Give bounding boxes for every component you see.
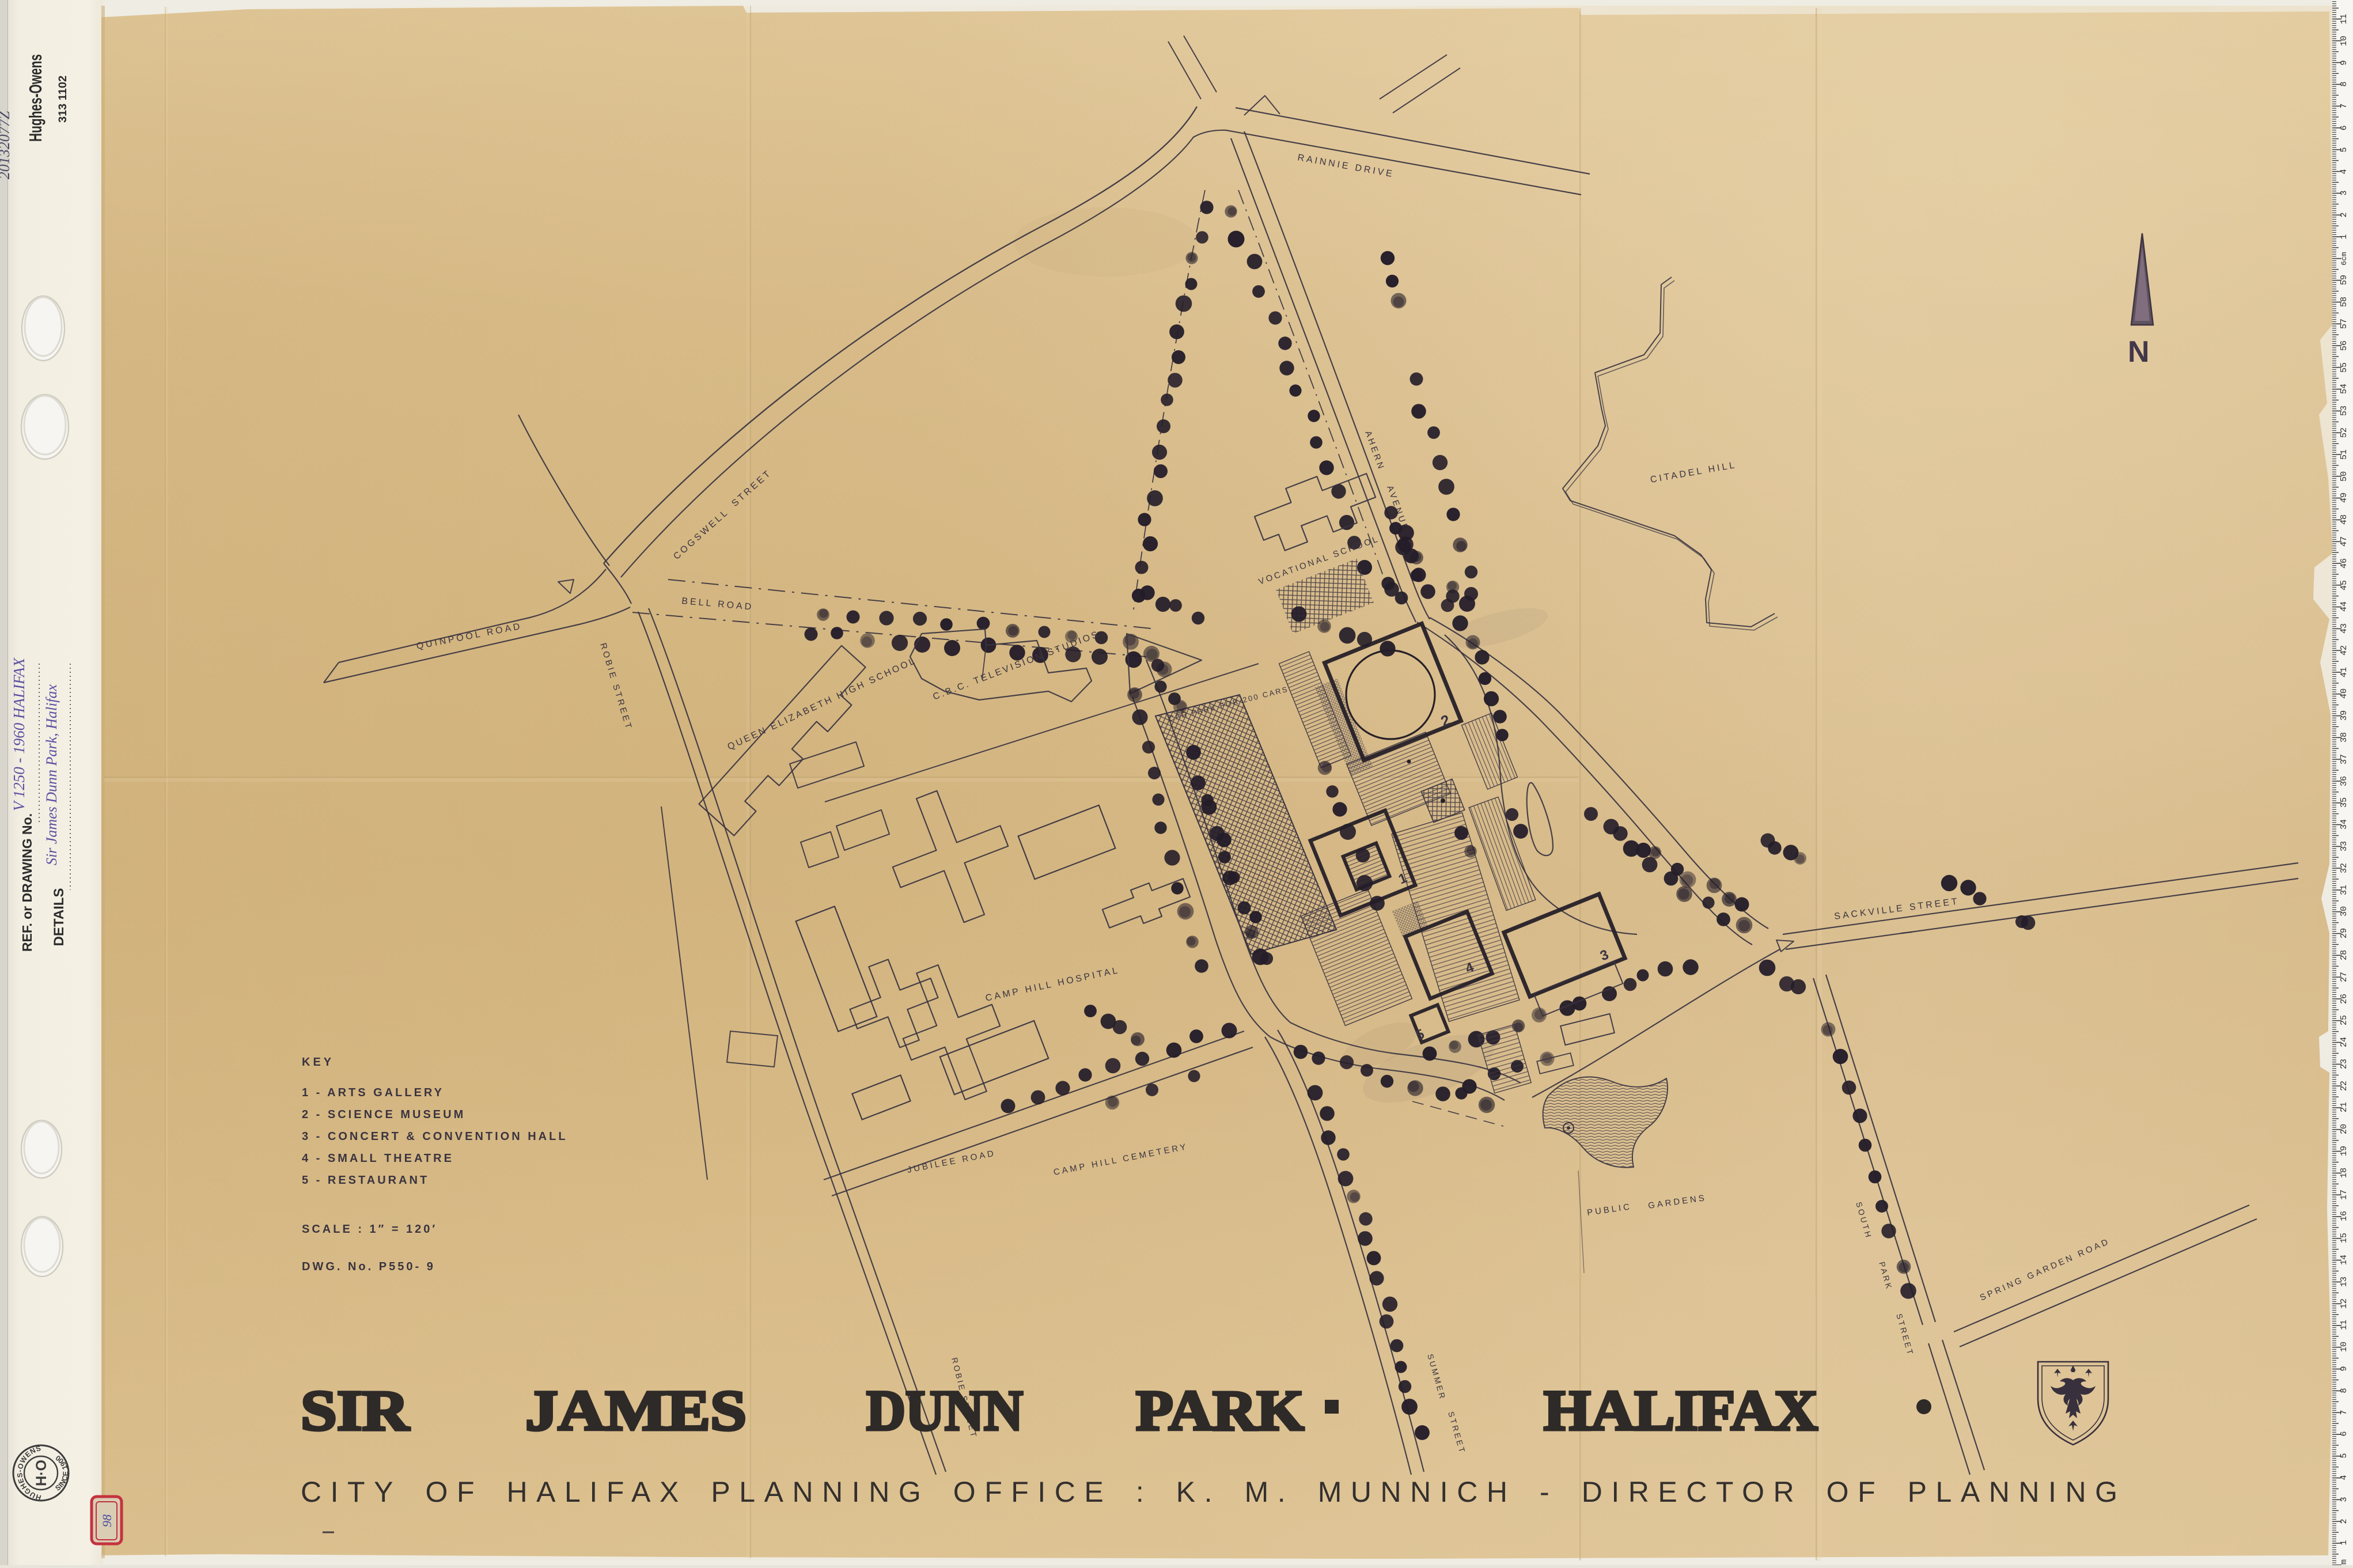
svg-text:7: 7 [2339,103,2349,108]
svg-text:40: 40 [2339,688,2349,699]
svg-text:28: 28 [2339,950,2349,960]
svg-text:5 - RESTAURANT: 5 - RESTAURANT [302,1174,429,1187]
svg-text:25: 25 [2339,1015,2349,1025]
svg-text:2 - SCIENCE MUSEUM: 2 - SCIENCE MUSEUM [302,1108,465,1121]
svg-text:12: 12 [2339,1298,2349,1309]
svg-text:HALIFAX: HALIFAX [1544,1378,1818,1442]
svg-text:7: 7 [2339,1410,2349,1415]
svg-text:21: 21 [2339,1102,2349,1112]
svg-text:17: 17 [2339,1190,2349,1200]
svg-text:DETAILS: DETAILS [51,888,67,946]
svg-text:10: 10 [2339,1342,2349,1352]
svg-text:32: 32 [2339,863,2349,873]
svg-text:45: 45 [2339,580,2349,590]
svg-text:2: 2 [2339,1518,2349,1524]
svg-text:43: 43 [2339,623,2349,634]
svg-text:54: 54 [2339,384,2349,394]
svg-text:14: 14 [2339,1255,2349,1265]
svg-text:REF. or DRAWING No.: REF. or DRAWING No. [20,813,35,952]
svg-text:46: 46 [2339,558,2349,569]
svg-text:27: 27 [2339,972,2349,982]
svg-text:JAMES: JAMES [525,1378,747,1442]
svg-text:8: 8 [2339,1388,2349,1393]
svg-text:4 - SMALL THEATRE: 4 - SMALL THEATRE [302,1152,454,1165]
svg-text:KEY: KEY [302,1056,334,1069]
svg-text:4: 4 [2339,1475,2349,1480]
svg-text:31: 31 [2339,885,2349,895]
svg-text:34: 34 [2339,819,2349,830]
svg-text:33: 33 [2339,841,2349,851]
svg-text:44: 44 [2339,601,2349,612]
svg-text:4: 4 [2339,169,2349,174]
svg-text:9: 9 [2339,60,2349,65]
svg-text:26: 26 [2339,994,2349,1004]
svg-text:30: 30 [2339,906,2349,916]
svg-text:3 - CONCERT & CONVENTION H: 3 - CONCERT & CONVENTION HALL [302,1130,568,1143]
svg-text:2: 2 [2339,212,2349,217]
svg-text:5: 5 [2339,147,2349,152]
svg-text:SCALE : 1″ = 120′: SCALE : 1″ = 120′ [302,1223,437,1236]
svg-text:6: 6 [2339,125,2349,130]
svg-text:cm: cm [2339,1559,2349,1565]
svg-text:51: 51 [2339,449,2349,460]
svg-text:CITY OF HALIFAX PLANNING OFFIC: CITY OF HALIFAX PLANNING OFFICE : K. M. … [301,1476,2128,1508]
svg-text:55: 55 [2339,362,2349,373]
svg-text:313 1102: 313 1102 [57,75,69,123]
svg-text:16: 16 [2339,1211,2349,1221]
svg-text:20132077Z: 20132077Z [0,111,13,179]
svg-text:N: N [2128,335,2150,369]
svg-text:58: 58 [2339,297,2349,307]
svg-text:Sir James Dunn Park, Halifax: Sir James Dunn Park, Halifax [43,684,60,865]
svg-text:20: 20 [2339,1124,2349,1134]
svg-text:57: 57 [2339,319,2349,329]
svg-text:22: 22 [2339,1081,2349,1091]
svg-text:6: 6 [2339,1431,2349,1436]
svg-text:9: 9 [2339,1366,2349,1371]
svg-text:H·O: H·O [33,1460,50,1486]
svg-text:11: 11 [2339,1320,2349,1330]
svg-text:41: 41 [2339,667,2349,677]
svg-text:5: 5 [2339,1453,2349,1458]
svg-text:49: 49 [2339,493,2349,503]
svg-text:10: 10 [2339,36,2349,46]
svg-text:39: 39 [2339,710,2349,721]
svg-text:8: 8 [2339,81,2349,86]
svg-text:1: 1 [2339,234,2349,239]
svg-text:11: 11 [2339,14,2349,24]
svg-text:59: 59 [2339,275,2349,285]
svg-text:19: 19 [2339,1146,2349,1156]
svg-text:3: 3 [2339,1497,2349,1502]
svg-text:36: 36 [2339,776,2349,786]
svg-text:47: 47 [2339,536,2349,547]
svg-text:37: 37 [2339,754,2349,764]
svg-text:6cm: 6cm [2340,252,2348,266]
svg-text:DUNN: DUNN [866,1378,1023,1442]
svg-text:56: 56 [2339,340,2349,351]
svg-text:52: 52 [2339,427,2349,438]
svg-text:29: 29 [2339,928,2349,938]
svg-text:SIR: SIR [301,1378,410,1442]
svg-text:42: 42 [2339,645,2349,656]
svg-text:38: 38 [2339,732,2349,743]
svg-text:24: 24 [2339,1037,2349,1047]
svg-text:98: 98 [100,1514,114,1527]
svg-text:15: 15 [2339,1233,2349,1243]
svg-text:1 - ARTS GALLERY: 1 - ARTS GALLERY [302,1086,444,1099]
svg-text:3: 3 [2339,190,2349,195]
svg-text:V 1250 - 1960 HALIFAX: V 1250 - 1960 HALIFAX [10,657,28,811]
svg-text:50: 50 [2339,471,2349,482]
svg-text:1: 1 [2339,1540,2349,1545]
svg-text:13: 13 [2339,1277,2349,1287]
svg-text:48: 48 [2339,514,2349,525]
svg-text:23: 23 [2339,1059,2349,1069]
svg-text:35: 35 [2339,797,2349,808]
svg-text:DWG. No. P550- 9: DWG. No. P550- 9 [302,1260,435,1273]
svg-text:18: 18 [2339,1168,2349,1178]
svg-text:53: 53 [2339,406,2349,416]
svg-text:Hughes-Owens: Hughes-Owens [25,54,46,142]
svg-text:PARK: PARK [1136,1378,1304,1442]
